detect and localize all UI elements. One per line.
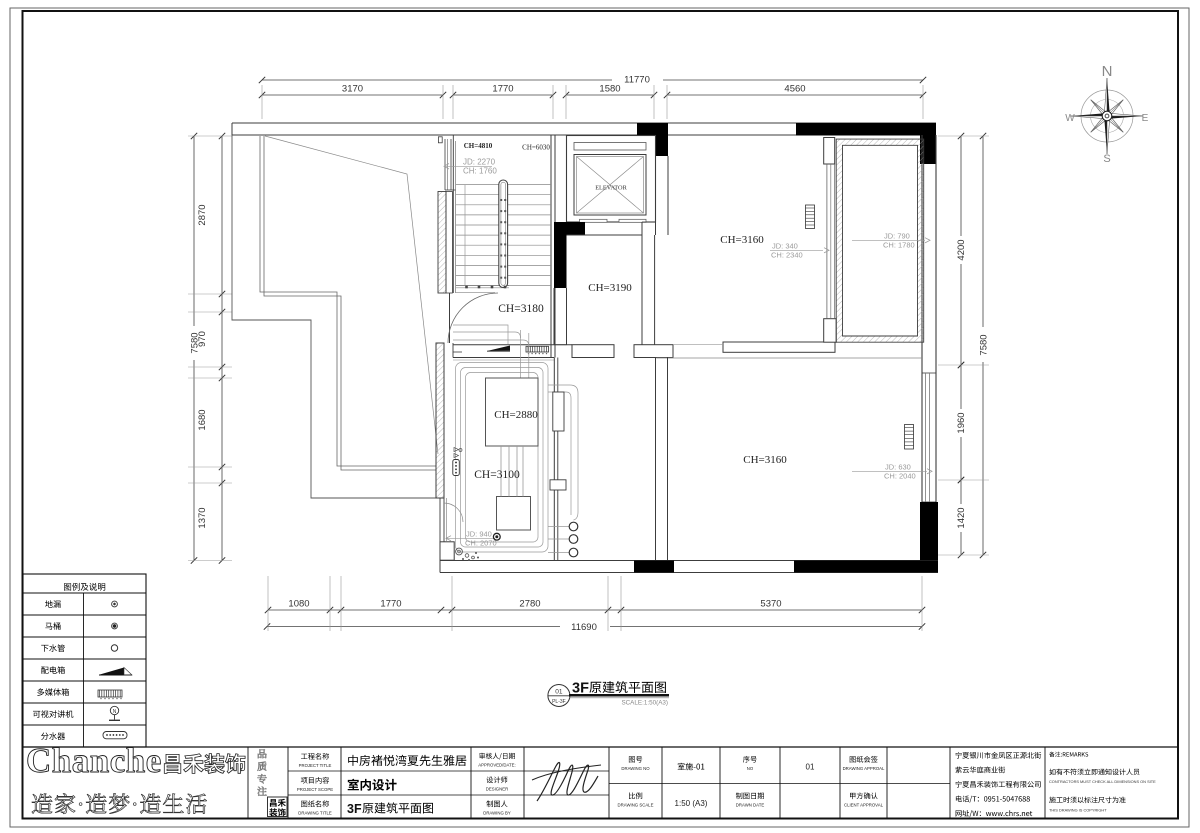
svg-text:4560: 4560	[784, 84, 805, 95]
svg-text:CLIENT APPROVAL: CLIENT APPROVAL	[844, 803, 884, 808]
svg-text:1960: 1960	[956, 412, 967, 433]
svg-text:2870: 2870	[197, 204, 208, 225]
svg-text:CH=2880: CH=2880	[494, 409, 538, 421]
svg-text:1770: 1770	[492, 84, 513, 95]
svg-text:DRAWING SCALE: DRAWING SCALE	[618, 803, 654, 808]
svg-text:CH=3180: CH=3180	[498, 303, 544, 315]
svg-text:11690: 11690	[571, 622, 597, 633]
svg-text:DRAWING NO: DRAWING NO	[621, 766, 650, 771]
svg-text:N: N	[1102, 63, 1113, 80]
svg-text:4200: 4200	[956, 239, 967, 260]
svg-text:3F: 3F	[347, 802, 362, 816]
svg-text:DRAWN DATE: DRAWN DATE	[736, 803, 765, 808]
svg-text:SCALE:1:50(A3): SCALE:1:50(A3)	[621, 700, 668, 707]
svg-text:JD: 790: JD: 790	[884, 232, 910, 241]
svg-text:CH: 2070: CH: 2070	[465, 539, 497, 548]
svg-text:5370: 5370	[760, 599, 781, 610]
svg-text:W: W	[1065, 113, 1075, 124]
svg-text:3170: 3170	[342, 84, 363, 95]
svg-text:CH=3190: CH=3190	[588, 282, 632, 294]
svg-text:CH=4810: CH=4810	[464, 142, 493, 150]
svg-text:DRAWING TITLE: DRAWING TITLE	[298, 811, 332, 816]
svg-text:CH=6030: CH=6030	[522, 144, 550, 152]
svg-text:01: 01	[555, 689, 563, 696]
svg-text:ELEVATOR: ELEVATOR	[595, 185, 627, 192]
svg-text:CH=3160: CH=3160	[743, 454, 787, 466]
svg-text:1080: 1080	[288, 599, 309, 610]
svg-text:7580: 7580	[979, 334, 990, 355]
svg-text:CH: 2340: CH: 2340	[771, 251, 803, 260]
svg-text:1770: 1770	[380, 599, 401, 610]
svg-text:970: 970	[197, 331, 208, 347]
svg-text:PROJECT SCOPE: PROJECT SCOPE	[297, 787, 333, 792]
svg-text:DESIGNER: DESIGNER	[486, 787, 508, 792]
svg-text:1580: 1580	[599, 84, 620, 95]
svg-text:11770: 11770	[624, 75, 650, 86]
svg-text:S: S	[1103, 153, 1110, 165]
svg-text:E: E	[1142, 113, 1149, 124]
svg-text:CH: 2040: CH: 2040	[884, 472, 916, 481]
svg-text:NO: NO	[747, 766, 754, 771]
svg-text:3F: 3F	[572, 681, 589, 697]
svg-text:CONTRACTORS MUST CHECK ALL DIM: CONTRACTORS MUST CHECK ALL DIMENSIONS ON…	[1049, 779, 1156, 784]
svg-text:CH: 1780: CH: 1780	[883, 241, 915, 250]
svg-text:1680: 1680	[197, 409, 208, 430]
svg-text:THIS DRAWING IS COPYRIGHT: THIS DRAWING IS COPYRIGHT	[1049, 808, 1107, 813]
svg-text:2780: 2780	[519, 599, 540, 610]
svg-text:N: N	[113, 709, 117, 715]
svg-text:1370: 1370	[197, 507, 208, 528]
svg-text:Chanche: Chanche	[26, 741, 162, 780]
svg-text:PROJECT TITLE: PROJECT TITLE	[299, 763, 332, 768]
svg-text:01: 01	[806, 763, 815, 772]
svg-text:JD: 630: JD: 630	[885, 463, 911, 472]
svg-text:PL-3F: PL-3F	[552, 699, 566, 705]
svg-text:DRAWING APPROAL: DRAWING APPROAL	[843, 766, 885, 771]
svg-text:CH: 1760: CH: 1760	[463, 167, 497, 176]
svg-text:CH=3100: CH=3100	[474, 469, 520, 481]
svg-text:CH=3160: CH=3160	[720, 234, 764, 246]
svg-text:JD: 940: JD: 940	[466, 530, 492, 539]
svg-text:1:50 (A3): 1:50 (A3)	[675, 799, 708, 808]
svg-text:JD: 2270: JD: 2270	[463, 158, 496, 167]
svg-text:1420: 1420	[956, 507, 967, 528]
svg-text:JD: 340: JD: 340	[772, 242, 798, 251]
svg-text:DRAWING BY: DRAWING BY	[483, 811, 511, 816]
svg-text:APPROVED/DATE:: APPROVED/DATE:	[478, 763, 515, 768]
